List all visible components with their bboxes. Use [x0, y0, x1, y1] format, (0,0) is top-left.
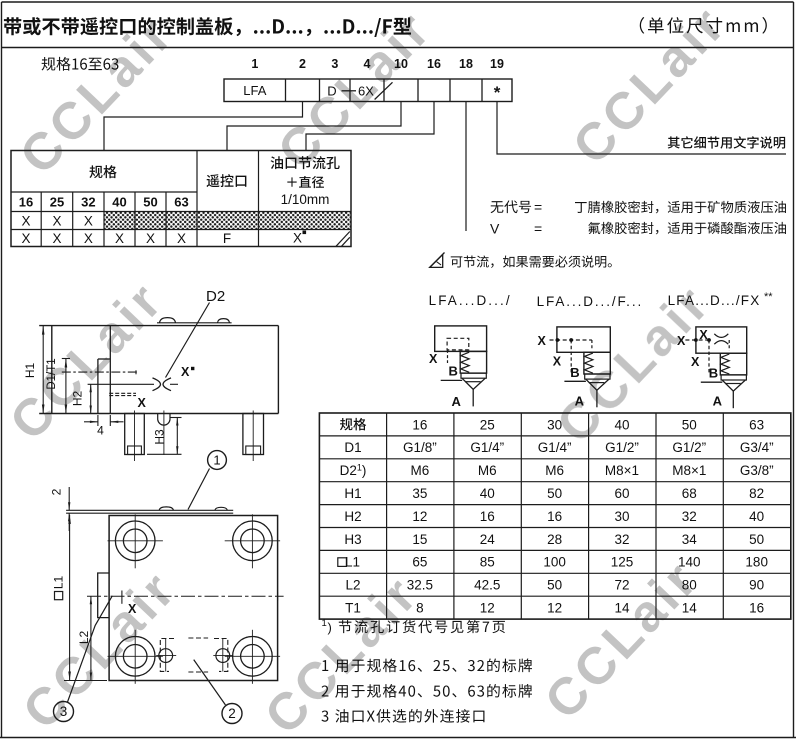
- svg-text:25: 25: [480, 417, 495, 432]
- svg-text:X: X: [677, 334, 686, 348]
- svg-text:M6: M6: [478, 463, 497, 478]
- svg-text:B: B: [449, 363, 458, 378]
- svg-text:50: 50: [143, 195, 157, 210]
- svg-text:15: 15: [412, 532, 427, 547]
- svg-text:16: 16: [547, 509, 562, 524]
- svg-text:16: 16: [19, 195, 33, 210]
- svg-text:82: 82: [749, 486, 764, 501]
- svg-text:X: X: [52, 214, 61, 229]
- svg-text:G3/8”: G3/8”: [740, 463, 774, 478]
- svg-text:100: 100: [543, 555, 566, 570]
- svg-text:X: X: [21, 231, 30, 246]
- svg-text:L1: L1: [52, 576, 66, 590]
- svg-text:2: 2: [50, 488, 64, 495]
- svg-text:M8×1: M8×1: [605, 463, 639, 478]
- svg-text:32: 32: [81, 195, 95, 210]
- svg-text:A: A: [713, 394, 723, 409]
- svg-text:G1/2”: G1/2”: [672, 440, 706, 455]
- svg-text:2: 2: [299, 57, 306, 71]
- svg-text:A: A: [575, 394, 585, 409]
- svg-text:25: 25: [50, 195, 64, 210]
- svg-text:X: X: [177, 231, 186, 246]
- svg-text:3: 3: [60, 704, 68, 719]
- svg-text:60: 60: [614, 486, 629, 501]
- svg-text:X: X: [553, 354, 562, 368]
- svg-text:30: 30: [547, 417, 562, 432]
- svg-text:=: =: [534, 199, 542, 215]
- svg-text:12: 12: [412, 509, 427, 524]
- svg-text:80: 80: [682, 578, 697, 593]
- svg-text:X: X: [84, 214, 93, 229]
- svg-text:72: 72: [614, 578, 629, 593]
- svg-text:35: 35: [412, 486, 427, 501]
- svg-text:18: 18: [459, 57, 473, 71]
- svg-text:1: 1: [213, 453, 220, 468]
- svg-text:H1: H1: [23, 363, 37, 379]
- svg-text:X: X: [21, 214, 30, 229]
- svg-text:125: 125: [611, 555, 634, 570]
- svg-text:40: 40: [480, 486, 495, 501]
- svg-text:28: 28: [547, 532, 562, 547]
- svg-text:X: X: [429, 352, 438, 366]
- svg-text:12: 12: [480, 601, 495, 616]
- svg-text:63: 63: [749, 417, 764, 432]
- svg-text:V: V: [490, 221, 500, 237]
- svg-text:40: 40: [749, 509, 764, 524]
- svg-text:H3: H3: [344, 532, 361, 547]
- svg-text:*: *: [494, 83, 501, 102]
- svg-text:M8×1: M8×1: [672, 463, 706, 478]
- svg-text:50: 50: [682, 417, 697, 432]
- svg-text:3: 3: [331, 57, 338, 71]
- svg-text:LFA...D.../: LFA...D.../: [429, 293, 512, 308]
- svg-text:): ): [328, 620, 332, 635]
- svg-text:G1/4”: G1/4”: [470, 440, 504, 455]
- svg-text:140: 140: [678, 555, 701, 570]
- svg-text:1/10mm: 1/10mm: [281, 192, 330, 207]
- svg-text:4: 4: [97, 424, 104, 438]
- svg-text:32.5: 32.5: [407, 578, 433, 593]
- svg-text:G3/4”: G3/4”: [740, 440, 774, 455]
- svg-text:LFA...D.../FX: LFA...D.../FX: [668, 293, 761, 308]
- svg-text:X: X: [699, 328, 708, 342]
- svg-text:32: 32: [682, 509, 697, 524]
- svg-text:D21): D21): [340, 463, 367, 479]
- svg-text:X: X: [538, 334, 547, 348]
- svg-text:90: 90: [749, 578, 764, 593]
- svg-text:8: 8: [416, 601, 424, 616]
- svg-text:X: X: [146, 231, 155, 246]
- svg-text:X: X: [138, 396, 147, 410]
- svg-text:19: 19: [490, 57, 504, 71]
- svg-text:X: X: [691, 355, 700, 369]
- svg-text:42.5: 42.5: [474, 578, 500, 593]
- svg-text:L2: L2: [345, 578, 360, 593]
- svg-text:32: 32: [614, 532, 629, 547]
- svg-text:D: D: [327, 84, 336, 99]
- svg-text:24: 24: [480, 532, 496, 547]
- svg-text:X: X: [52, 231, 61, 246]
- svg-text:G1/2”: G1/2”: [605, 440, 639, 455]
- svg-text:X: X: [181, 365, 190, 379]
- svg-text:X: X: [84, 231, 93, 246]
- svg-text:M6: M6: [545, 463, 564, 478]
- svg-text:**: **: [764, 291, 773, 303]
- svg-text:14: 14: [614, 601, 630, 616]
- svg-text:85: 85: [480, 555, 495, 570]
- svg-text:63: 63: [174, 195, 188, 210]
- svg-text:16: 16: [749, 601, 764, 616]
- svg-text:180: 180: [745, 555, 768, 570]
- svg-text:H1: H1: [344, 486, 361, 501]
- svg-text:65: 65: [412, 555, 427, 570]
- svg-text:A: A: [452, 394, 462, 409]
- svg-text:68: 68: [682, 486, 697, 501]
- svg-text:16: 16: [427, 57, 441, 71]
- svg-text:50: 50: [749, 532, 764, 547]
- svg-text:H2: H2: [71, 391, 85, 407]
- svg-text:30: 30: [614, 509, 629, 524]
- svg-text:40: 40: [614, 417, 629, 432]
- svg-text:12: 12: [547, 601, 562, 616]
- svg-text:1: 1: [322, 618, 327, 629]
- svg-text:2: 2: [228, 706, 236, 721]
- svg-text:LFA: LFA: [243, 83, 266, 98]
- svg-text:L1: L1: [345, 555, 360, 570]
- svg-text:D1: D1: [344, 440, 361, 455]
- svg-text:D1/T1: D1/T1: [46, 358, 58, 389]
- svg-text:14: 14: [682, 601, 698, 616]
- svg-text:=: =: [534, 221, 542, 237]
- svg-text:B: B: [570, 365, 579, 380]
- svg-text:1: 1: [251, 57, 258, 71]
- svg-text:G1/4”: G1/4”: [538, 440, 572, 455]
- svg-text:B: B: [709, 366, 718, 381]
- svg-text:M6: M6: [411, 463, 430, 478]
- svg-text:G1/8”: G1/8”: [403, 440, 437, 455]
- svg-text:6X: 6X: [358, 84, 374, 99]
- svg-text:50: 50: [547, 486, 562, 501]
- svg-text:16: 16: [480, 509, 495, 524]
- svg-text:10: 10: [394, 57, 408, 71]
- svg-text:34: 34: [682, 532, 698, 547]
- svg-text:X: X: [115, 231, 124, 246]
- svg-text:H3: H3: [153, 429, 167, 445]
- svg-text:16: 16: [412, 417, 427, 432]
- svg-text:X: X: [293, 231, 302, 246]
- svg-text:40: 40: [112, 195, 126, 210]
- svg-text:4: 4: [364, 57, 371, 71]
- svg-text:X: X: [128, 602, 137, 616]
- svg-text:50: 50: [547, 578, 562, 593]
- svg-text:F: F: [223, 231, 231, 246]
- svg-text:LFA...D.../F...: LFA...D.../F...: [537, 294, 644, 309]
- svg-text:T1: T1: [345, 601, 361, 616]
- svg-text:H2: H2: [344, 509, 361, 524]
